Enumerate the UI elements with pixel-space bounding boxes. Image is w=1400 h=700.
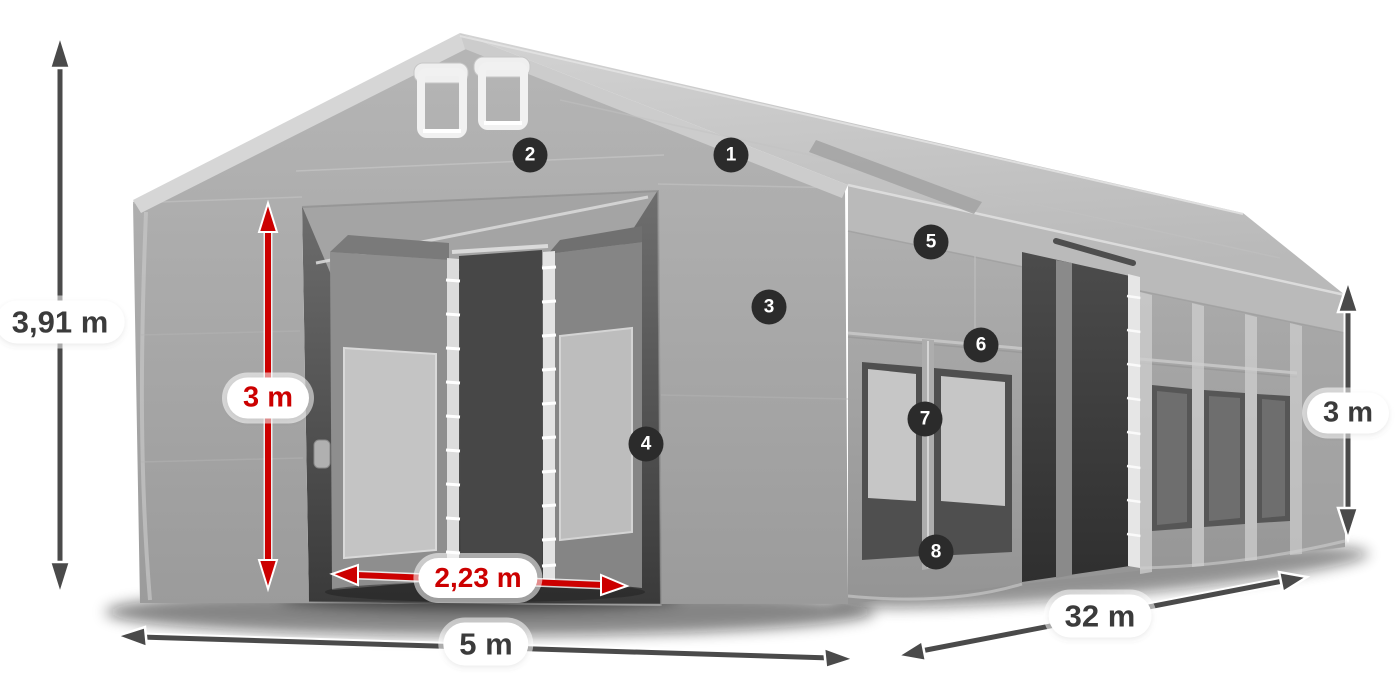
marker-8[interactable]: 8 [919, 535, 954, 570]
marker-6[interactable]: 6 [964, 328, 999, 363]
marker-5[interactable]: 5 [914, 225, 949, 260]
inner-door-left [330, 235, 460, 590]
marker-7[interactable]: 7 [908, 402, 943, 437]
product-illustration-canvas: 3,91 m 3 m 2,23 m 5 m 32 m 3 m 1 2 3 4 5… [0, 0, 1400, 700]
marker-4[interactable]: 4 [629, 427, 664, 462]
side-height-label: 3 m [1307, 393, 1389, 434]
marker-2[interactable]: 2 [513, 138, 548, 173]
side-length-label: 32 m [1049, 595, 1152, 638]
marker-3[interactable]: 3 [752, 290, 787, 325]
tent-illustration [0, 0, 1400, 700]
front-width-label: 5 m [443, 623, 528, 666]
side-door-opening [1022, 241, 1141, 582]
inner-door-right [542, 226, 642, 588]
marker-1[interactable]: 1 [714, 138, 749, 173]
door-height-label: 3 m [227, 378, 309, 419]
total-height-label: 3,91 m [0, 301, 124, 344]
tent-interior [302, 190, 661, 604]
door-latch [314, 440, 330, 468]
door-width-label: 2,23 m [418, 558, 537, 598]
